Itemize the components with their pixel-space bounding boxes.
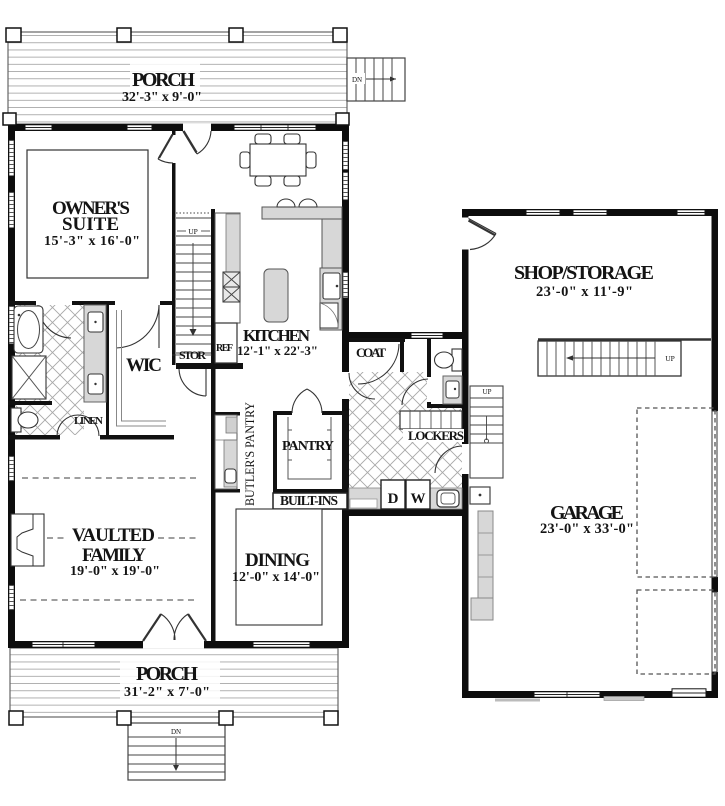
svg-text:DN: DN	[171, 728, 181, 736]
svg-text:VAULTED: VAULTED	[72, 525, 155, 546]
svg-text:BUTLER'S PANTRY: BUTLER'S PANTRY	[243, 402, 257, 506]
svg-text:SHOP/STORAGE: SHOP/STORAGE	[514, 262, 654, 284]
svg-text:BUILT-INS: BUILT-INS	[280, 493, 338, 508]
svg-text:PORCH: PORCH	[136, 663, 198, 685]
svg-text:SUITE: SUITE	[62, 214, 119, 235]
svg-text:32'-3" x 9'-0": 32'-3" x 9'-0"	[122, 90, 202, 105]
svg-text:19'-0" x 19'-0": 19'-0" x 19'-0"	[70, 564, 160, 579]
svg-text:STOR: STOR	[179, 348, 206, 362]
svg-text:UP: UP	[483, 388, 492, 396]
svg-text:DINING: DINING	[245, 550, 310, 571]
svg-text:LINEN: LINEN	[74, 415, 103, 427]
svg-text:W: W	[411, 491, 426, 507]
svg-text:WIC: WIC	[126, 355, 162, 376]
svg-text:15'-3" x 16'-0": 15'-3" x 16'-0"	[44, 234, 140, 249]
svg-text:D: D	[388, 491, 399, 507]
svg-text:12'-0" x 14'-0": 12'-0" x 14'-0"	[232, 570, 320, 585]
svg-text:12'-1" x 22'-3": 12'-1" x 22'-3"	[237, 343, 318, 358]
svg-text:PANTRY: PANTRY	[282, 439, 334, 454]
svg-text:31'-2" x 7'-0": 31'-2" x 7'-0"	[124, 685, 210, 700]
svg-text:PORCH: PORCH	[132, 69, 195, 91]
svg-text:FAMILY: FAMILY	[82, 545, 146, 566]
svg-text:UP: UP	[665, 354, 675, 363]
svg-text:COAT: COAT	[356, 345, 386, 360]
svg-text:LOCKERS: LOCKERS	[408, 428, 464, 443]
svg-text:DN: DN	[352, 76, 362, 84]
svg-text:REF: REF	[216, 343, 233, 354]
svg-text:23'-0" x 11'-9": 23'-0" x 11'-9"	[536, 284, 633, 300]
svg-text:UP: UP	[188, 227, 198, 236]
svg-text:23'-0" x 33'-0": 23'-0" x 33'-0"	[540, 521, 634, 537]
